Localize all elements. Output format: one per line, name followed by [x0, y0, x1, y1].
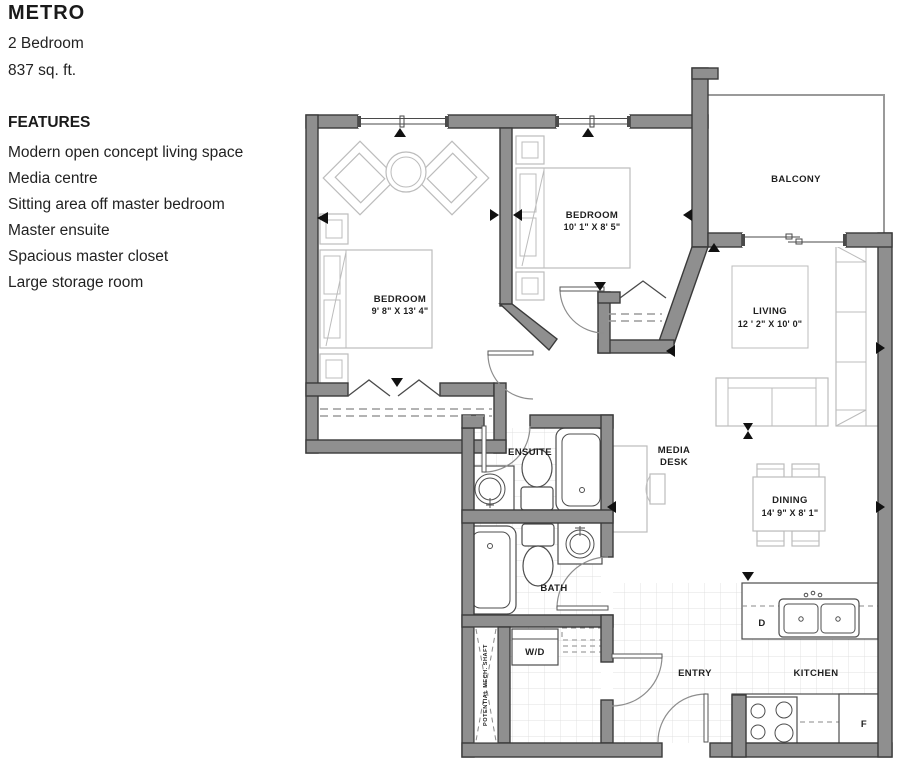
floorplan-page: METRO 2 Bedroom 837 sq. ft. FEATURES Mod… — [0, 0, 900, 758]
kitchen-counter-upper — [742, 583, 878, 639]
wall — [692, 68, 708, 247]
fridge-label: F — [861, 719, 867, 730]
direction-marker — [742, 572, 754, 581]
floorplan-canvas: BALCONY BEDROOM 10' 1" X 8' 5" BEDROOM 9… — [0, 0, 900, 758]
direction-marker — [391, 378, 403, 387]
media-desk-label: MEDIA — [658, 445, 691, 456]
sofa — [836, 246, 878, 426]
wall — [601, 615, 613, 662]
living-label: LIVING — [753, 306, 787, 317]
dishwasher-label: D — [758, 618, 765, 629]
bath-toilet — [522, 524, 554, 586]
bifold-door — [398, 380, 440, 396]
kitchen-sink — [779, 599, 859, 637]
master-bedroom-label: BEDROOM — [374, 294, 426, 305]
nightstand — [516, 272, 544, 300]
entry-label: ENTRY — [678, 668, 712, 679]
wall — [601, 415, 613, 557]
ensuite-tub — [556, 428, 606, 512]
wall — [732, 695, 746, 757]
balcony-label: BALCONY — [771, 174, 821, 185]
wall — [306, 383, 348, 396]
bifold-door — [348, 380, 390, 396]
wall — [692, 68, 718, 79]
balcony-slider-window — [742, 233, 846, 247]
wall-diagonal — [658, 247, 708, 344]
mech-shaft-label: POTENTIAL MECH. SHAFT — [483, 644, 489, 726]
section-marker — [743, 431, 753, 439]
armchair — [415, 141, 489, 215]
media-desk — [613, 446, 665, 532]
balcony — [708, 95, 884, 233]
bifold-door — [620, 281, 666, 298]
wd-label: W/D — [525, 647, 545, 658]
wall — [448, 115, 556, 128]
window — [358, 115, 448, 128]
master-bedroom-dims: 9' 8" X 13' 4" — [372, 306, 429, 316]
dining-label: DINING — [772, 495, 808, 506]
window — [556, 115, 630, 128]
wall — [306, 115, 318, 453]
ensuite-toilet — [521, 449, 553, 510]
armchair — [323, 141, 397, 215]
wall — [462, 510, 613, 523]
section-marker — [743, 423, 753, 431]
dining-dims: 14' 9" X 8' 1" — [762, 508, 819, 518]
wall — [846, 233, 892, 247]
direction-marker — [683, 209, 692, 221]
wall — [601, 700, 613, 743]
bath-vanity — [558, 522, 602, 564]
living-dims: 12 ' 2" X 10' 0" — [738, 319, 803, 329]
bath-label: BATH — [540, 583, 567, 594]
ensuite-label: ENSUITE — [508, 447, 552, 458]
wall — [498, 627, 510, 743]
bedroom2-label: BEDROOM — [566, 210, 618, 221]
wall — [462, 428, 474, 757]
direction-marker — [394, 128, 406, 137]
wall-diagonal — [500, 304, 557, 350]
wall — [306, 440, 506, 453]
media-desk-label: DESK — [660, 457, 688, 468]
kitchen-label: KITCHEN — [793, 668, 838, 679]
wall — [462, 415, 484, 428]
wall — [462, 743, 662, 757]
wall — [440, 383, 494, 396]
nightstand — [320, 354, 348, 384]
stove — [745, 697, 797, 744]
side-table — [386, 152, 426, 192]
wall — [598, 292, 620, 303]
balcony-outline — [708, 95, 884, 233]
bedroom2-dims: 10' 1" X 8' 5" — [564, 222, 621, 232]
nightstand — [516, 136, 544, 164]
wall — [878, 233, 892, 757]
direction-marker — [490, 209, 499, 221]
loveseat — [716, 378, 828, 426]
wall — [500, 128, 512, 306]
direction-marker — [582, 128, 594, 137]
wall — [462, 615, 613, 627]
